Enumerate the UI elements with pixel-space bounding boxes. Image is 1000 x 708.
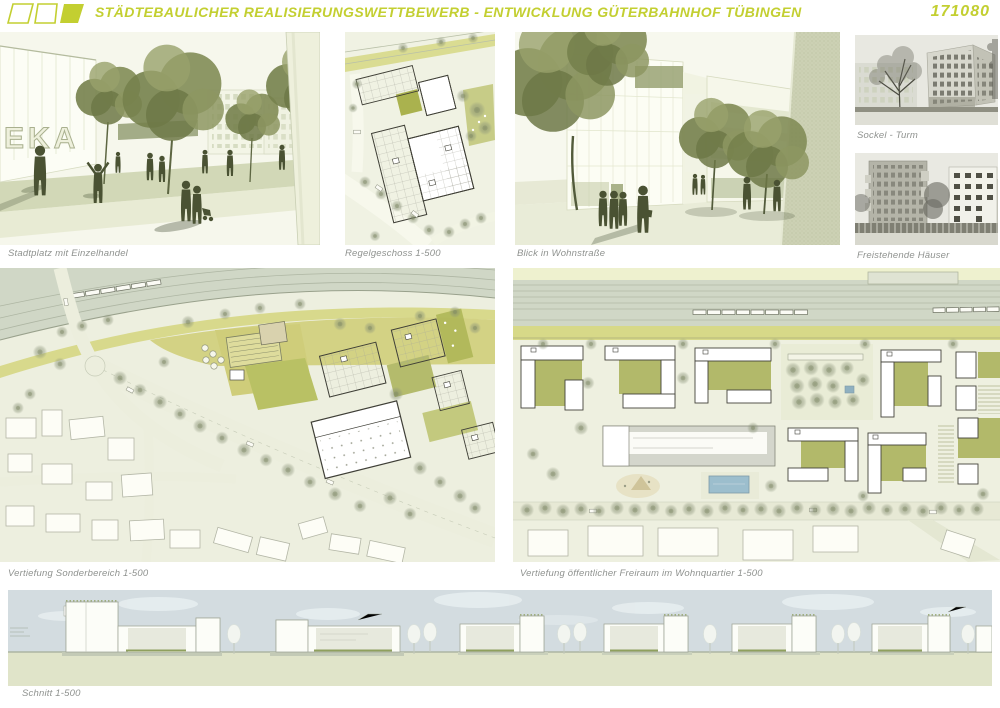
board-title: STÄDTEBAULICHER REALISIERUNGSWETTBEWERB … xyxy=(95,4,802,20)
caption-stadtplatz: Stadtplatz mit Einzelhandel xyxy=(8,248,128,259)
figure-wohnstrasse: Blick in Wohnstraße xyxy=(515,32,840,245)
fence xyxy=(855,223,998,233)
wohnstrasse-rendering xyxy=(515,32,840,245)
entry-number: 171080 xyxy=(931,3,990,21)
street-edge xyxy=(855,107,998,112)
wohnquartier-plan xyxy=(513,268,1000,562)
logo-shape-outline-1 xyxy=(8,4,33,23)
schnitt-section xyxy=(8,590,992,686)
figure-wohnquartier: Vertiefung öffentlicher Freiraum im Wohn… xyxy=(513,268,1000,562)
figure-sonderbereich: Vertiefung Sonderbereich 1-500 xyxy=(0,268,495,562)
caption-sonderbereich: Vertiefung Sonderbereich 1-500 xyxy=(8,568,148,579)
central-plaza xyxy=(781,344,873,420)
figure-regelgeschoss: Regelgeschoss 1-500 xyxy=(345,32,495,245)
ground xyxy=(8,652,992,686)
playground xyxy=(616,474,660,498)
sonderbereich-plan xyxy=(0,268,495,562)
caption-schnitt: Schnitt 1-500 xyxy=(22,688,81,699)
caption-sockel-turm: Sockel - Turm xyxy=(857,130,918,141)
stadtplatz-rendering: EKA xyxy=(0,32,320,245)
foreground xyxy=(855,112,998,125)
caption-wohnstrasse: Blick in Wohnstraße xyxy=(517,248,605,259)
main-building xyxy=(927,45,995,108)
figure-stadtplatz: EKA xyxy=(0,32,320,245)
pool-area xyxy=(701,472,759,499)
sockel-turm-photo xyxy=(855,35,998,125)
railway xyxy=(513,268,1000,326)
logo-shape-outline-2 xyxy=(35,4,57,23)
train-b xyxy=(933,307,999,313)
office-logo-icon xyxy=(7,3,87,25)
regelgeschoss-plan xyxy=(345,32,495,245)
caption-wohnquartier: Vertiefung öffentlicher Freiraum im Wohn… xyxy=(520,568,763,579)
left-building xyxy=(865,161,929,225)
caption-freistehende-haeuser: Freistehende Häuser xyxy=(857,250,950,261)
figure-freistehende-haeuser: Freistehende Häuser xyxy=(855,153,998,245)
foreground xyxy=(855,233,998,245)
figure-schnitt: Schnitt 1-500 xyxy=(8,590,992,686)
caption-regelgeschoss: Regelgeschoss 1-500 xyxy=(345,248,441,259)
right-building xyxy=(949,167,997,225)
left-building: EKA xyxy=(0,46,96,182)
figure-sockel-turm: Sockel - Turm xyxy=(855,35,998,125)
freistehende-haeuser-photo xyxy=(855,153,998,245)
competition-board: STÄDTEBAULICHER REALISIERUNGSWETTBEWERB … xyxy=(0,0,1000,708)
logo-shape-filled-3 xyxy=(60,4,84,23)
